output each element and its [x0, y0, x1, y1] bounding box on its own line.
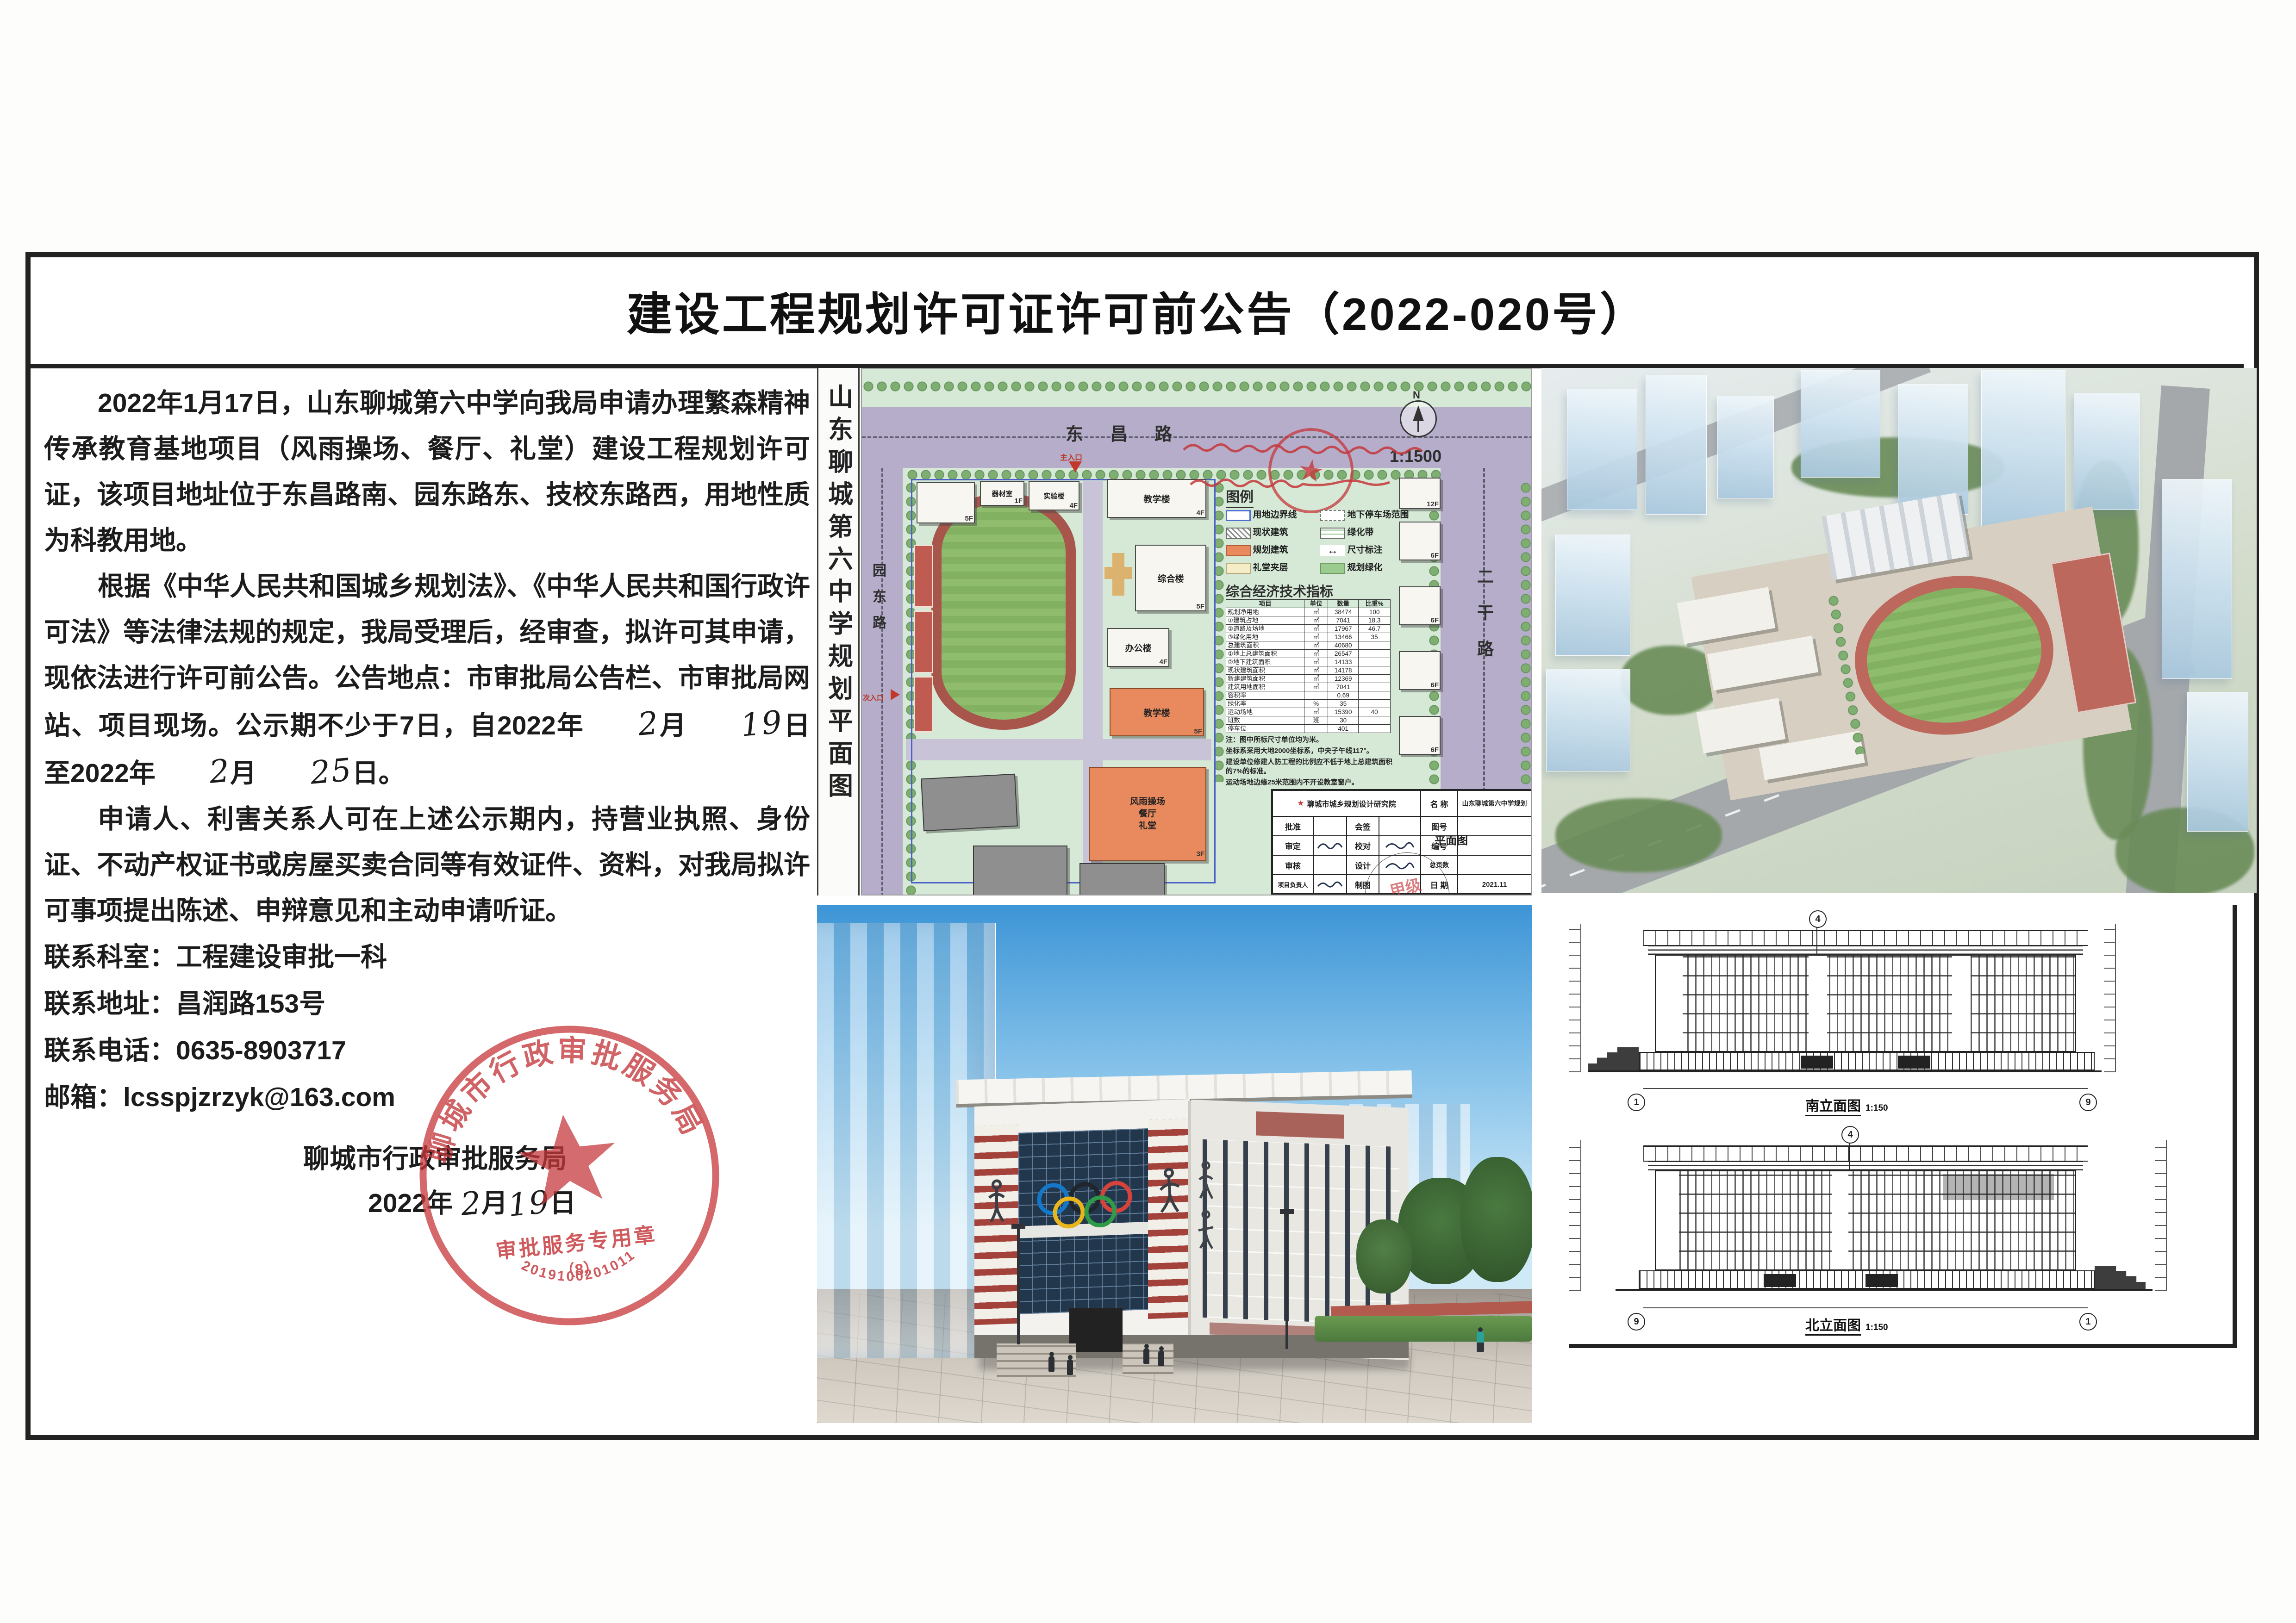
massing-tower — [817, 923, 996, 1358]
axis-marker-top: 4 — [1809, 910, 1827, 928]
econ-table: 项目单位 数量比重% 规划净用地㎡38474100 ①建筑占地㎡704118.3… — [1226, 599, 1391, 733]
cell-signature — [1379, 836, 1421, 855]
floor-label: 6F — [1430, 616, 1439, 624]
cell-blank — [1458, 836, 1531, 855]
sport-figure-icon — [983, 1175, 1011, 1231]
red-accent-panel — [1256, 1111, 1344, 1138]
massing-tower — [2187, 692, 2248, 832]
floor-label: 5F — [1194, 728, 1202, 735]
econ-row: 总建筑面积㎡40680 — [1226, 641, 1391, 650]
massing-tower — [1646, 375, 1707, 515]
handwritten-month-2: 2 — [154, 748, 232, 800]
contact-email: 邮箱：lcsspjzrzyk@163.com — [44, 1074, 810, 1121]
axis-marker-right: 9 — [2079, 1094, 2097, 1111]
sig-month-char: 月 — [481, 1188, 508, 1218]
handwritten-month-1: 2 — [582, 700, 661, 752]
tree-column — [1519, 481, 1532, 784]
basketball-court — [914, 676, 933, 733]
legend-row: 规划绿化 — [1320, 560, 1382, 574]
massing-tower — [1801, 370, 1880, 478]
massing-tower — [1546, 669, 1630, 771]
massing-tower — [1555, 535, 1630, 656]
light-pole-head — [1280, 1209, 1294, 1214]
pedestrian — [1067, 1359, 1073, 1375]
floor-label: 5F — [1196, 603, 1204, 610]
building-dorm-nw: 5F — [917, 482, 975, 523]
light-pole — [1285, 1214, 1288, 1349]
drawing-title-block: ★聊城市城乡规划设计研究院 名 称 山东聊城第六中学规划 批准 会签 图号 审定… — [1271, 789, 1532, 895]
road-label-yuandong: 园东路 — [867, 563, 888, 641]
facade-wall-gap — [1952, 956, 1971, 1051]
institute-name: 聊城市城乡规划设计研究院 — [1307, 798, 1396, 809]
handwritten-annotation — [1181, 429, 1468, 517]
road-label-ergan: 二干路 — [1472, 568, 1496, 676]
tree-mass — [1555, 798, 1722, 872]
econ-row: 绿化率%35 — [1226, 700, 1391, 708]
axis-marker-right: 1 — [2079, 1313, 2097, 1331]
building-label: 教学楼 — [1143, 706, 1170, 719]
building-zonghe: 综合楼5F — [1135, 545, 1206, 611]
sport-figure-icon — [1156, 1164, 1184, 1220]
legend-row: ↔ 尺寸标注 — [1320, 543, 1382, 556]
elevation-stairs — [2095, 1266, 2146, 1289]
floor-label: 6F — [1430, 746, 1439, 754]
elevation-door — [1764, 1274, 1796, 1287]
main-entrance-label: 主入口 — [1060, 451, 1082, 462]
econ-row: ②地下建筑面积㎡14133 — [1226, 658, 1391, 666]
legend-row: 现状建筑 — [1226, 525, 1288, 539]
cell-blank — [1313, 855, 1347, 875]
axis-marker-left: 1 — [1628, 1094, 1645, 1111]
econ-row: 现状建筑面积㎡14178 — [1226, 666, 1391, 675]
dimension-column-right — [2104, 924, 2116, 1072]
building-existing: 6F — [1399, 522, 1441, 560]
basketball-court — [914, 610, 933, 673]
legend-row: 用地边界线 — [1226, 508, 1297, 521]
pedestrian — [1158, 1350, 1164, 1366]
axis-marker-top: 4 — [1841, 1126, 1859, 1144]
econ-row: 建筑用地面积㎡7041 — [1226, 683, 1391, 691]
name-label-cell: 名 称 — [1421, 790, 1458, 816]
axis-number: 9 — [2085, 1097, 2090, 1108]
cell-countersign: 会签 — [1347, 816, 1379, 836]
project-name-cell: 山东聊城第六中学规划 — [1458, 790, 1531, 816]
econ-header-row: 项目单位 数量比重% — [1226, 600, 1391, 608]
site-plan-vertical-title-strip: 山东聊城第六中学规划平面图 — [817, 368, 860, 895]
light-pole — [1017, 1229, 1020, 1344]
legend-row: 绿化带 — [1320, 525, 1373, 539]
signature-date: 2022年 2月19日 — [368, 1182, 810, 1220]
tree-row — [862, 380, 1532, 393]
handwritten-day-1: 19 — [686, 699, 785, 753]
gym-corner-edge — [1188, 1101, 1191, 1353]
notice-paragraph-3: 申请人、利害关系人可在上述公示期内，持营业执照、身份证、不动产权证书或房屋买卖合… — [44, 796, 810, 934]
floor-label: 3F — [1196, 848, 1204, 860]
cell-blank — [1458, 855, 1531, 875]
building-dorm — [921, 774, 1018, 832]
elevation-door — [1801, 1056, 1833, 1069]
legend-row: 礼堂夹层 — [1226, 560, 1288, 574]
dimension-line — [1643, 1088, 2088, 1089]
building-existing: 6F — [1399, 716, 1441, 755]
handwritten-sig-month: 2 — [459, 1185, 483, 1223]
building-jiaoxue-new: 教学楼5F — [1110, 688, 1204, 736]
notice-paragraph-1: 2022年1月17日，山东聊城第六中学向我局申请办理繁森精神传承教育基地项目（风… — [44, 380, 810, 564]
parapet-bands — [1648, 1160, 2083, 1170]
notice-text-block: 2022年1月17日，山东聊城第六中学向我局申请办理繁森精神传承教育基地项目（风… — [44, 380, 810, 1220]
building-existing: 6F — [1399, 651, 1441, 690]
building-dorm — [973, 846, 1067, 895]
sig-day-char: 日 — [549, 1188, 576, 1218]
facade-wall-gap — [1656, 1171, 1679, 1269]
building-qicai: 器材室1F — [980, 481, 1024, 506]
drawing-type-label: 平面图 — [1435, 831, 1468, 847]
building-gym-canteen-hall: 风雨操场 餐厅 礼堂 3F — [1089, 767, 1206, 861]
axis-marker-left: 9 — [1628, 1313, 1645, 1331]
plan-notes: 注：图中所标尺寸单位均为米。 坐标系采用大地2000坐标系，中央子午线117°。… — [1226, 735, 1393, 789]
dimension-column-left — [1569, 924, 1581, 1072]
basketball-court — [914, 545, 933, 608]
entrance-stairs — [997, 1343, 1076, 1377]
legend-swatch-existing — [1226, 528, 1251, 539]
secondary-entrance-marker — [891, 689, 900, 700]
roof-line — [1643, 930, 2088, 946]
elevation-door — [1898, 1056, 1930, 1069]
month-char: 月 — [230, 759, 256, 788]
contact-department: 联系科室：工程建设审批一科 — [44, 934, 810, 981]
floor-label: 1F — [1014, 497, 1023, 505]
legend-row: 规划建筑 — [1226, 543, 1288, 556]
massing-tower — [1717, 396, 1774, 498]
axis-number: 9 — [1634, 1317, 1639, 1327]
cell-verify: 审定 — [1273, 836, 1313, 855]
facade-body — [1655, 955, 2076, 1052]
cell-blank — [1313, 816, 1347, 836]
gym-label-line: 餐厅 — [1139, 808, 1156, 820]
building-label: 教学楼 — [1143, 492, 1170, 505]
econ-row: ②道路及场地㎡1796746.7 — [1226, 625, 1391, 633]
econ-row: 运动场地㎡1539040 — [1226, 708, 1391, 716]
econ-row: 班数班30 — [1226, 716, 1391, 725]
dark-panel — [1943, 1174, 2054, 1200]
building-label: 综合楼 — [1157, 572, 1184, 585]
legend-label: 规划绿化 — [1347, 563, 1382, 572]
tree — [1356, 1219, 1412, 1293]
legend-label: 规划建筑 — [1253, 545, 1288, 555]
legend-label: 礼堂夹层 — [1253, 563, 1288, 572]
tree — [1460, 1157, 1532, 1282]
base-story — [1639, 1052, 2095, 1070]
facade-wall-gap — [1832, 1171, 1848, 1269]
gym-label-line: 风雨操场 — [1130, 796, 1165, 808]
legend-label: 现状建筑 — [1253, 528, 1288, 537]
month-char: 月 — [659, 711, 687, 740]
ground-line — [1588, 1070, 2102, 1072]
legend-label: 尺寸标注 — [1347, 545, 1382, 555]
floor-label: 6F — [1430, 681, 1439, 689]
cell-approve: 批准 — [1273, 816, 1313, 836]
dimension-column-left — [1569, 1140, 1581, 1291]
legend-title: 图例 — [1226, 485, 1254, 508]
notice-paragraph-2: 根据《中华人民共和国城乡规划法》、《中华人民共和国行政许可法》等法律法规的规定，… — [44, 564, 810, 796]
axis-number: 4 — [1847, 1130, 1853, 1140]
econ-row: ③绿化用地㎡1346635 — [1226, 633, 1391, 641]
contact-address: 联系地址：昌润路153号 — [44, 981, 810, 1027]
massing-tower — [1567, 389, 1637, 510]
parapet-bands — [1648, 945, 2083, 955]
axis-number: 1 — [1634, 1097, 1639, 1108]
econ-row: 停车位401 — [1226, 725, 1391, 733]
legend-swatch-parking — [1320, 510, 1345, 521]
building-dorm — [1079, 863, 1165, 895]
floor-label: 4F — [1069, 502, 1078, 510]
facade-wall-gap — [1809, 956, 1827, 1051]
econ-row: ①建筑占地㎡704118.3 — [1226, 616, 1391, 625]
axis-number: 4 — [1815, 914, 1820, 925]
road-label-dongchang: 东昌路 — [1066, 420, 1199, 445]
courtyard-cross — [1112, 553, 1124, 596]
gym-label-line: 礼堂 — [1139, 820, 1156, 832]
facade-wall-gap — [1656, 956, 1683, 1051]
legend-swatch-mezzanine — [1226, 563, 1251, 574]
building-label: 器材室 — [992, 489, 1012, 498]
cell-blank — [1379, 816, 1421, 836]
north-elevation: 4 9 1 北立面图1:150 — [1588, 1126, 2185, 1330]
cell-proofread: 校对 — [1347, 836, 1379, 855]
title-band: 建设工程规划许可证许可前公告（2022-020号） — [31, 257, 2244, 368]
econ-row: 新建建筑面积㎡12369 — [1226, 675, 1391, 683]
sig-year: 2022年 — [368, 1188, 453, 1218]
elevation-stairs — [1588, 1047, 1639, 1070]
building-shiyan: 实验楼4F — [1029, 481, 1079, 510]
facade-body — [1655, 1170, 2076, 1270]
road-centerline — [881, 468, 883, 895]
plan-note: 建设单位修建人防工程的比例应不低于地上总建筑面积的7%的标准。 — [1226, 758, 1393, 776]
legend-swatch-dimension: ↔ — [1320, 545, 1345, 556]
building-label: 办公楼 — [1125, 641, 1151, 654]
aerial-rendering — [1541, 368, 2257, 893]
elevation-sheet: 4 1 9 南立面图1:150 4 — [1569, 905, 2237, 1348]
site-plan-title: 山东聊城第六中学规划平面图 — [820, 384, 857, 805]
cell-review: 审核 — [1273, 855, 1313, 875]
cell-project-lead: 项目负责人 — [1273, 875, 1313, 894]
legend-swatch-greenbelt — [1320, 528, 1345, 539]
plan-note: 注：图中所标尺寸单位均为米。 — [1226, 735, 1393, 745]
site-plan-map: 东昌路 园东路 二干路 5F — [861, 368, 1532, 895]
axis-number: 1 — [2085, 1317, 2090, 1327]
main-entrance-marker — [1069, 461, 1082, 473]
secondary-entrance-label: 次入口 — [863, 693, 884, 703]
cell-signature — [1313, 836, 1347, 855]
plan-note: 坐标系采用大地2000坐标系，中央子午线117°。 — [1226, 746, 1393, 756]
building-existing: 6F — [1399, 586, 1441, 625]
running-track — [931, 493, 1076, 730]
elevation-door — [1865, 1274, 1898, 1287]
plan-note: 运动场地边缘25米范围内不开设教室窗户。 — [1226, 778, 1393, 787]
legend-swatch-boundary — [1226, 510, 1251, 521]
site-plan-panel: 山东聊城第六中学规划平面图 东昌路 园东路 二干路 — [817, 368, 1532, 895]
sport-figure-icon — [1195, 1155, 1218, 1276]
pedestrian — [1048, 1356, 1054, 1372]
p2-end: 日。 — [352, 759, 405, 788]
roof-line — [1643, 1145, 2088, 1162]
legend-label: 绿化带 — [1347, 528, 1373, 537]
design-institute: ★聊城市城乡规划设计研究院 — [1273, 790, 1421, 816]
econ-row: 容积率0.69 — [1226, 691, 1391, 700]
building-label: 实验楼 — [1043, 491, 1064, 501]
building-rendering — [817, 905, 1532, 1423]
olympic-rings — [1035, 1179, 1134, 1233]
floor-label: 5F — [965, 515, 973, 522]
contact-phone: 联系电话：0635-8903717 — [44, 1027, 810, 1074]
light-pole-head — [1011, 1224, 1025, 1229]
hedge — [1315, 1316, 1532, 1342]
dimension-column-right — [2155, 1140, 2167, 1291]
scanned-announcement-page: 建设工程规划许可证许可前公告（2022-020号） 2022年1月17日，山东聊… — [0, 0, 2296, 1623]
legend-row: 地下停车场范围 — [1320, 508, 1409, 521]
south-elevation: 4 1 9 南立面图1:150 — [1588, 910, 2185, 1114]
econ-row: ①地上总建筑面积㎡26547 — [1226, 650, 1391, 658]
floor-label: 4F — [1159, 658, 1167, 666]
legend-swatch-green — [1320, 563, 1345, 574]
grade-text: 甲级 — [1387, 872, 1423, 895]
econ-table-title: 综合经济技术指标 — [1226, 581, 1333, 600]
econ-row: 规划净用地㎡38474100 — [1226, 608, 1391, 616]
ground-line — [1616, 1289, 2152, 1291]
signature-organization: 聊城市行政审批服务局 — [303, 1138, 810, 1175]
entrance-door — [1069, 1308, 1123, 1352]
south-elevation-label: 南立面图1:150 — [1805, 1094, 1888, 1115]
cell-date-value: 2021.11 — [1458, 875, 1531, 894]
legend-swatch-planned — [1226, 545, 1251, 556]
legend-label: 用地边界线 — [1253, 510, 1297, 520]
north-elevation-label: 北立面图1:150 — [1805, 1314, 1888, 1334]
north-letter: N — [1413, 389, 1420, 401]
handwritten-sig-day: 19 — [506, 1184, 551, 1224]
cell-signature — [1313, 875, 1347, 894]
page-title: 建设工程规划许可证许可前公告（2022-020号） — [627, 278, 1647, 343]
massing-tower — [2162, 479, 2232, 679]
handwritten-day-2: 25 — [255, 747, 354, 801]
building-bangong: 办公楼4F — [1107, 628, 1169, 667]
institute-logo-icon: ★ — [1297, 799, 1304, 808]
pedestrian — [1143, 1348, 1149, 1364]
dimension-line — [1643, 1307, 2088, 1308]
pedestrian-teal — [1477, 1331, 1484, 1352]
floor-label: 6F — [1430, 552, 1439, 560]
legend-label: 地下停车场范围 — [1347, 510, 1409, 520]
cell-blank — [1458, 816, 1531, 836]
